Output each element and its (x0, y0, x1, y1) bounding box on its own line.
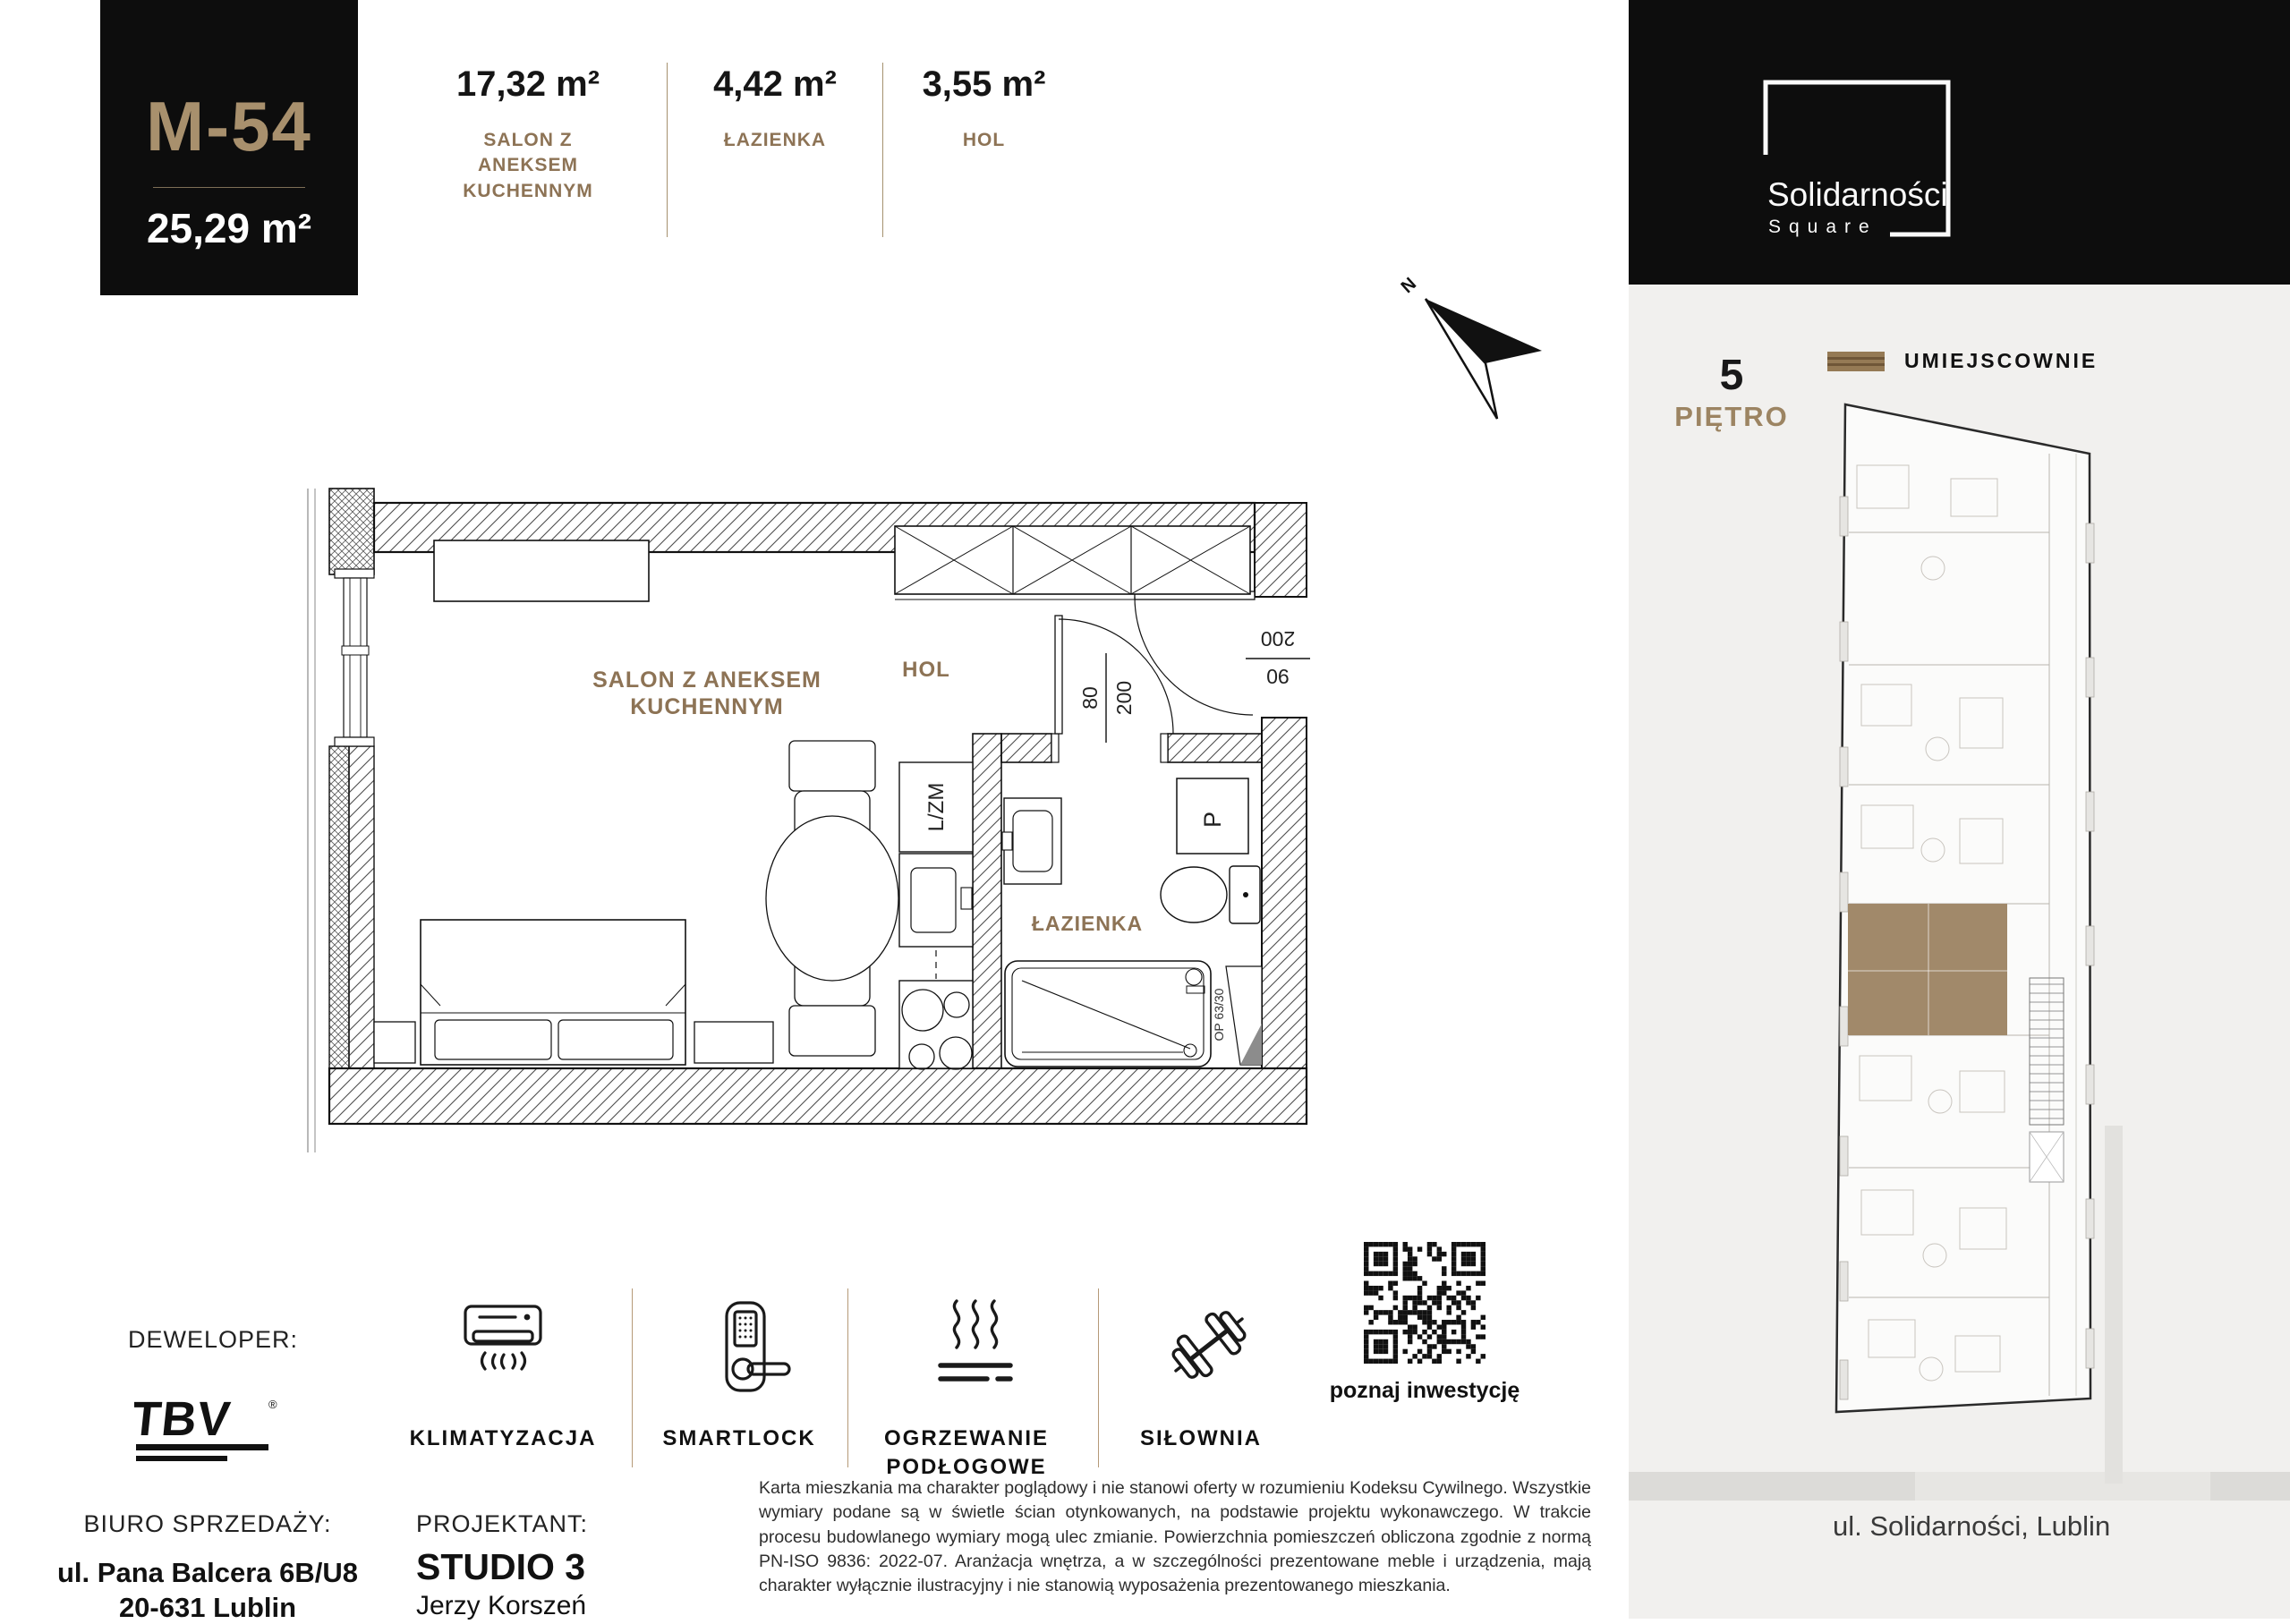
floor-label: PIĘTRO (1657, 401, 1806, 433)
salon-wardrobe (434, 540, 649, 601)
kitchen-unit-label: L/ZM (924, 783, 949, 832)
washer-box: P (1177, 778, 1248, 854)
kitchen-units: L/ZM (899, 762, 973, 1069)
wall-hall-bath-left (1001, 734, 1051, 762)
unit-separator (153, 187, 305, 188)
apartment-floor-plan: 80 200 200 90 L/ZM (295, 483, 1324, 1154)
location-header: UMIEJSCOWNIE (1827, 349, 2098, 373)
entrance-door-swing (1135, 597, 1253, 715)
bath-door-dimension: 80 200 (1078, 653, 1136, 743)
compass-n-label: N (1398, 274, 1420, 297)
svg-text:200: 200 (1112, 681, 1136, 715)
designer-name: Jerzy Korszeń (416, 1591, 586, 1621)
legal-disclaimer: Karta mieszkania ma charakter poglądowy … (759, 1476, 1591, 1598)
smartlock-icon (698, 1297, 796, 1398)
door-jamb (1161, 734, 1168, 762)
location-swatch-icon (1827, 352, 1885, 371)
room-col-hol: 3,55 m² HOL (883, 52, 1085, 153)
highlighted-unit (1848, 904, 2007, 1035)
amenity-label-smartlock: SMARTLOCK (614, 1424, 864, 1453)
sales-office-address2: 20-631 Lublin (47, 1592, 369, 1624)
room-col-salon: 17,32 m² SALON Z ANEKSEM KUCHENNYM (389, 52, 667, 204)
stairwell (2030, 978, 2064, 1125)
room-area-value: 17,32 m² (389, 64, 667, 105)
sidewalk-strip (2105, 1126, 2123, 1484)
window-mullion (342, 646, 369, 655)
tbv-logo-text: TBV (134, 1392, 234, 1446)
designer-studio: STUDIO 3 (416, 1546, 585, 1588)
designer-label: PROJEKTANT: (416, 1510, 588, 1538)
nightstand-left (374, 1022, 415, 1063)
sales-office-label: BIURO SPRZEDAŻY: (82, 1510, 333, 1538)
developer-label: DEWELOPER: (128, 1326, 298, 1354)
floor-heating-icon (926, 1294, 1025, 1401)
washer-label: P (1199, 812, 1226, 828)
sales-office-address1: ul. Pana Balcera 6B/U8 (47, 1557, 369, 1589)
amenity-label-klimatyzacja: KLIMATYZACJA (378, 1424, 628, 1453)
room-col-bathroom: 4,42 m² ŁAZIENKA (668, 52, 882, 153)
hall-label: HOL (902, 658, 950, 682)
brand-name: Solidarności (1767, 176, 1948, 213)
nightstand-right (694, 1022, 773, 1063)
svg-text:200: 200 (1261, 627, 1295, 650)
entry-door-dimension: 200 90 (1246, 627, 1310, 688)
unit-total-area: 25,29 m² (100, 204, 358, 252)
salon-label-line2: KUCHENNYM (630, 694, 784, 719)
room-name: HOL (904, 128, 1065, 153)
unit-header-card: M-54 25,29 m² (100, 0, 358, 295)
location-header-text: UMIEJSCOWNIE (1904, 349, 2098, 373)
dining-set (766, 741, 898, 1056)
room-areas-row: 17,32 m² SALON Z ANEKSEM KUCHENNYM 4,42 … (389, 52, 1085, 237)
qr-code (1364, 1242, 1486, 1364)
amenity-label-ogrzewanie: OGRZEWANIE PODŁOGOWE (841, 1424, 1092, 1483)
unit-id: M-54 (100, 86, 358, 167)
wall-left-insulation (329, 746, 349, 1068)
tbv-logo: TBV ® (134, 1392, 295, 1473)
wall-bottom (329, 1068, 1307, 1124)
bathroom-door-leaf (1055, 616, 1062, 734)
bathroom-sink (1002, 798, 1061, 884)
window-sill (335, 569, 374, 578)
wall-right (1262, 718, 1307, 1068)
amenity-label-silownia: SIŁOWNIA (1076, 1424, 1326, 1453)
svg-text:90: 90 (1266, 665, 1290, 688)
bathroom-label: ŁAZIENKA (1032, 912, 1143, 935)
brand-subname: Square (1768, 217, 1877, 237)
svg-text:®: ® (268, 1398, 277, 1411)
bed (421, 920, 685, 1065)
hall-closet (895, 526, 1250, 599)
window-code-label: OP 63/30 (1212, 988, 1226, 1041)
window-sill (335, 737, 374, 746)
wall-hall-bath-right (1168, 734, 1262, 762)
room-name: ŁAZIENKA (694, 128, 856, 153)
wall-right-top (1255, 503, 1307, 597)
door-jamb (1051, 734, 1059, 762)
toilet (1161, 866, 1260, 923)
room-area-value: 4,42 m² (668, 64, 882, 105)
building-address: ul. Solidarności, Lublin (1833, 1510, 2110, 1543)
bathtub (1005, 961, 1211, 1067)
qr-caption: poznaj inwestycję (1299, 1378, 1550, 1404)
gym-dumbbell-icon (1160, 1296, 1258, 1396)
brand-logo: Solidarności Square (1629, 0, 2290, 285)
air-conditioning-icon (458, 1299, 548, 1382)
wall-kitchen-bath (973, 734, 1001, 1068)
north-compass-icon: N (1392, 268, 1571, 438)
salon-label-line1: SALON Z ANEKSEM (592, 667, 822, 693)
window-frame (344, 578, 367, 737)
svg-text:80: 80 (1078, 686, 1102, 710)
bathroom-door-swing (1059, 619, 1173, 734)
floor-number: 5 (1682, 351, 1781, 400)
wall-left-corner (329, 489, 374, 574)
wall-left (349, 746, 374, 1068)
room-area-value: 3,55 m² (883, 64, 1085, 105)
building-key-plan (1826, 398, 2112, 1436)
room-name: SALON Z ANEKSEM KUCHENNYM (447, 128, 609, 204)
